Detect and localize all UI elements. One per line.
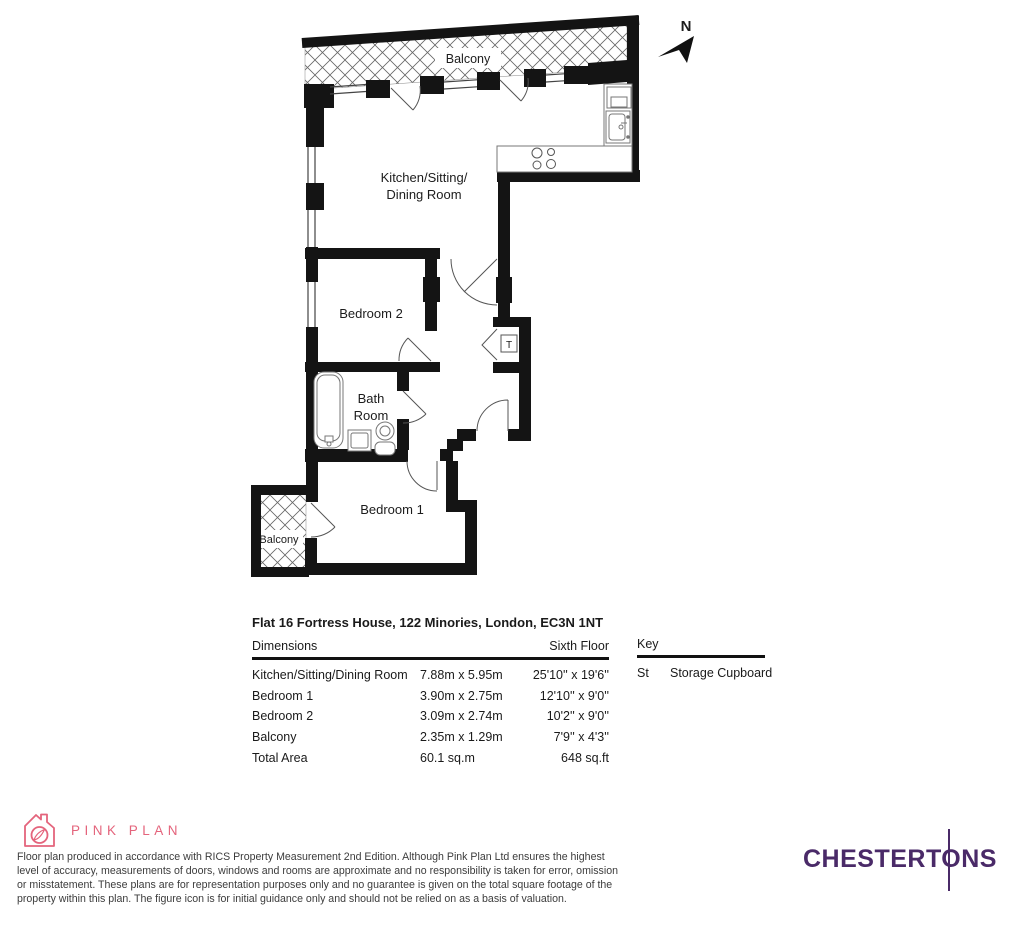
imperial-size: 10'2'' x 9'0'' bbox=[522, 709, 609, 723]
floor-plan-drawing: Balcony Balcony bbox=[0, 0, 1024, 612]
imperial-size: 648 sq.ft bbox=[522, 751, 609, 765]
dimensions-table: Flat 16 Fortress House, 122 Minories, Lo… bbox=[252, 615, 609, 768]
balcony-door-2 bbox=[500, 78, 528, 101]
disclaimer-text: Floor plan produced in accordance with R… bbox=[17, 851, 677, 907]
bathroom-label-line1: Bath bbox=[358, 391, 385, 406]
table-row: Bedroom 2 3.09m x 2.74m 10'2'' x 9'0'' bbox=[252, 706, 609, 727]
table-row: Kitchen/Sitting/Dining Room 7.88m x 5.95… bbox=[252, 665, 609, 686]
table-rule bbox=[252, 657, 609, 660]
walls bbox=[251, 16, 640, 577]
imperial-size: 12'10'' x 9'0'' bbox=[522, 689, 609, 703]
bathtub-icon bbox=[314, 372, 343, 448]
table-row: Balcony 2.35m x 1.29m 7'9'' x 4'3'' bbox=[252, 727, 609, 748]
dimensions-header: Dimensions bbox=[252, 639, 317, 653]
hall-door bbox=[451, 259, 497, 305]
tank-label: T bbox=[506, 340, 512, 351]
metric-size: 3.90m x 2.75m bbox=[420, 689, 522, 703]
floor-header: Sixth Floor bbox=[549, 639, 609, 653]
chestertons-wordmark: CHESTERTONS bbox=[803, 845, 997, 874]
key-meaning: Storage Cupboard bbox=[670, 666, 772, 680]
bathroom-door bbox=[403, 391, 426, 423]
balcony-bottom-door bbox=[311, 503, 335, 537]
north-label: N bbox=[681, 18, 692, 35]
pinkplan-logo: PINK PLAN bbox=[20, 809, 182, 851]
room-name: Bedroom 2 bbox=[252, 709, 420, 723]
kitchen-sink-icon bbox=[606, 111, 630, 143]
metric-size: 60.1 sq.m bbox=[420, 751, 522, 765]
metric-size: 2.35m x 1.29m bbox=[420, 730, 522, 744]
tank-box: T bbox=[501, 335, 517, 352]
key-rule bbox=[637, 655, 765, 658]
imperial-size: 7'9'' x 4'3'' bbox=[522, 730, 609, 744]
room-name: Balcony bbox=[252, 730, 420, 744]
room-name: Bedroom 1 bbox=[252, 689, 420, 703]
kitchen-counter-horizontal bbox=[497, 146, 632, 172]
bedroom2-window bbox=[308, 282, 315, 327]
bedroom2-door bbox=[399, 338, 431, 361]
bedroom2-label: Bedroom 2 bbox=[339, 306, 403, 321]
key-abbreviation: St bbox=[637, 666, 670, 680]
north-arrow-icon: N bbox=[658, 18, 694, 63]
bedroom1-label: Bedroom 1 bbox=[360, 502, 424, 517]
balcony-bottom: Balcony bbox=[255, 491, 306, 573]
pinkplan-wordmark: PINK PLAN bbox=[71, 823, 182, 838]
basin-icon bbox=[348, 430, 371, 451]
floorplan-page: Balcony Balcony bbox=[0, 0, 1024, 929]
table-row: Bedroom 1 3.90m x 2.75m 12'10'' x 9'0'' bbox=[252, 685, 609, 706]
metric-size: 7.88m x 5.95m bbox=[420, 668, 522, 682]
balcony-top-label: Balcony bbox=[446, 52, 491, 66]
room-name: Kitchen/Sitting/Dining Room bbox=[252, 668, 420, 682]
key-block: Key St Storage Cupboard bbox=[637, 637, 777, 683]
toilet-icon bbox=[375, 422, 395, 455]
metric-size: 3.09m x 2.74m bbox=[420, 709, 522, 723]
chestertons-vertical-line bbox=[948, 829, 950, 891]
balcony-bottom-label: Balcony bbox=[259, 534, 299, 546]
room-name: Total Area bbox=[252, 751, 420, 765]
imperial-size: 25'10'' x 19'6'' bbox=[522, 668, 609, 682]
entrance-door bbox=[477, 400, 508, 431]
bedroom1-door bbox=[407, 461, 437, 491]
pinkplan-house-icon bbox=[20, 809, 60, 851]
key-title: Key bbox=[637, 637, 777, 651]
bathroom-label-line2: Room bbox=[354, 408, 389, 423]
table-row: Total Area 60.1 sq.m 648 sq.ft bbox=[252, 748, 609, 769]
kitchen-label-line2: Dining Room bbox=[386, 187, 461, 202]
balcony-door-1 bbox=[391, 86, 420, 110]
cupboard-bifold-doors bbox=[482, 329, 497, 360]
kitchen-label-line1: Kitchen/Sitting/ bbox=[381, 170, 468, 185]
property-title: Flat 16 Fortress House, 122 Minories, Lo… bbox=[252, 615, 609, 630]
